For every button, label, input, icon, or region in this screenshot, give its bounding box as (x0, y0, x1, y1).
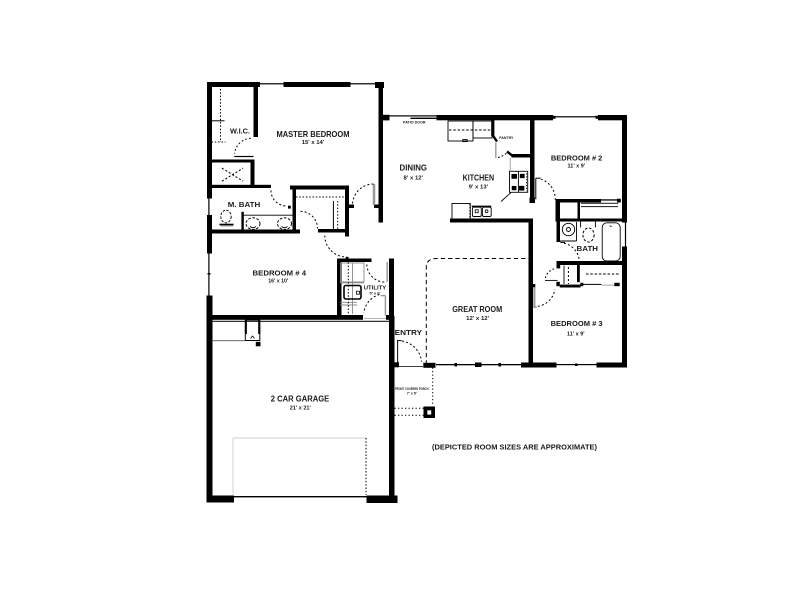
svg-text:12' x 12': 12' x 12' (466, 316, 490, 322)
svg-text:15' x 14': 15' x 14' (302, 140, 325, 146)
svg-text:KITCHEN: KITCHEN (463, 174, 495, 183)
svg-text:11' x 9': 11' x 9' (567, 331, 585, 337)
svg-text:PANTRY: PANTRY (499, 135, 513, 140)
svg-text:MASTER BEDROOM: MASTER BEDROOM (277, 130, 350, 139)
svg-text:(DEPICTED ROOM SIZES ARE APPRO: (DEPICTED ROOM SIZES ARE APPROXIMATE) (432, 443, 597, 452)
svg-text:8' x 12': 8' x 12' (404, 175, 424, 181)
svg-text:BEDROOM # 3: BEDROOM # 3 (551, 319, 603, 328)
svg-text:2 CAR GARAGE: 2 CAR GARAGE (271, 395, 330, 404)
svg-text:GREAT ROOM: GREAT ROOM (452, 305, 502, 314)
svg-text:M. BATH: M. BATH (228, 200, 261, 209)
svg-text:BATH: BATH (577, 244, 599, 253)
svg-text:5' x 6': 5' x 6' (370, 290, 381, 295)
svg-text:BEDROOM # 2: BEDROOM # 2 (551, 154, 603, 163)
svg-text:BEDROOM # 4: BEDROOM # 4 (253, 269, 307, 278)
svg-text:21' x 21': 21' x 21' (290, 406, 312, 412)
svg-text:ENTRY: ENTRY (395, 328, 423, 337)
svg-text:9' x 13': 9' x 13' (469, 185, 489, 191)
svg-text:16' x 10': 16' x 10' (268, 279, 289, 285)
svg-text:DINING: DINING (400, 164, 428, 173)
svg-text:PATIO DOOR: PATIO DOOR (403, 120, 426, 125)
svg-text:W.I.C.: W.I.C. (230, 127, 250, 136)
svg-text:11' x 9': 11' x 9' (568, 163, 586, 169)
svg-text:7' x 5': 7' x 5' (407, 391, 417, 395)
